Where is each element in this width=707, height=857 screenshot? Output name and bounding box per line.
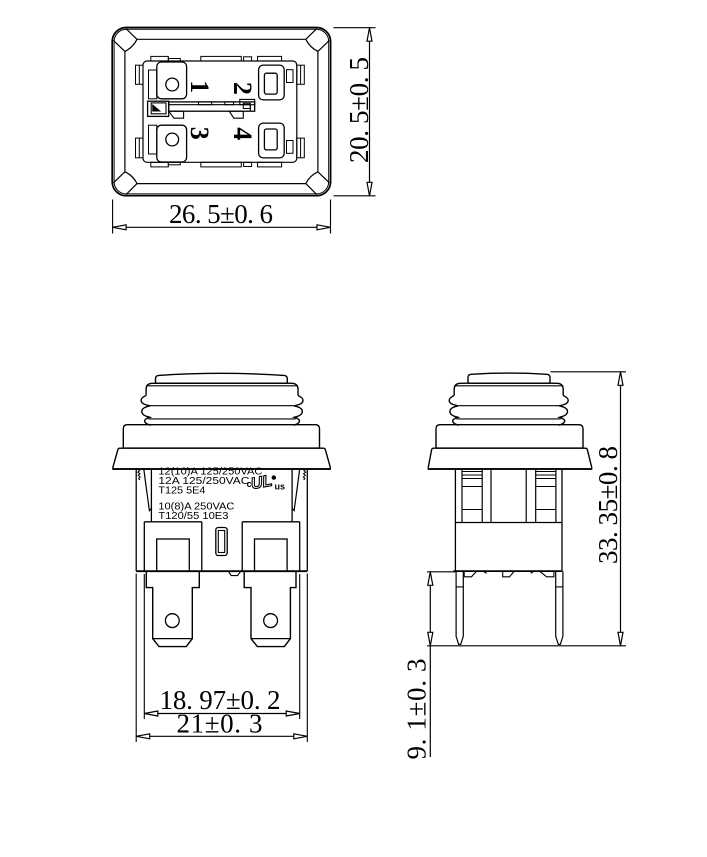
svg-text:20. 5±0. 5: 20. 5±0. 5 (344, 57, 374, 163)
svg-text:3: 3 (185, 127, 214, 140)
svg-text:33. 35±0. 8: 33. 35±0. 8 (593, 446, 623, 564)
svg-text:2: 2 (228, 82, 257, 95)
svg-text:UL: UL (250, 473, 274, 493)
svg-text:26. 5±0. 6: 26. 5±0. 6 (169, 199, 273, 229)
svg-text:1: 1 (185, 80, 214, 93)
svg-text:9. 1±0. 3: 9. 1±0. 3 (402, 659, 432, 760)
svg-text:T125 5E4: T125 5E4 (158, 485, 205, 497)
svg-text:T120/55 10E3: T120/55 10E3 (158, 510, 228, 522)
svg-text:4: 4 (228, 127, 257, 140)
svg-text:us: us (275, 482, 286, 492)
svg-text:21±0. 3: 21±0. 3 (177, 709, 263, 739)
